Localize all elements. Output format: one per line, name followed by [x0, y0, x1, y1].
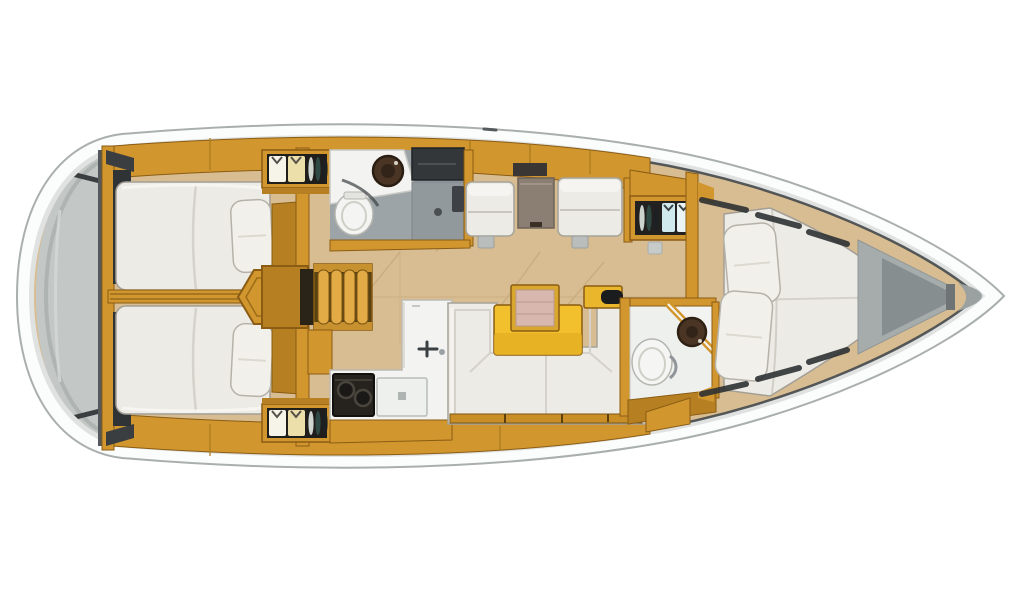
wardrobe-bottom-aft [262, 398, 332, 442]
companionway-base [308, 330, 332, 374]
hanging-garment [269, 156, 286, 182]
toilet [632, 339, 672, 385]
stored-disc [653, 205, 658, 231]
forward-bulkhead [686, 172, 698, 300]
settee-shelf-strip [450, 414, 642, 423]
shower-drain [434, 208, 442, 216]
armchair-foot [478, 236, 494, 248]
hanging-garment [288, 156, 305, 182]
shelf-niche-dark [513, 163, 547, 176]
stored-disc [308, 157, 313, 181]
wardrobe-foot [648, 242, 662, 254]
stored-disc [322, 411, 327, 435]
galley-plinth [330, 420, 452, 443]
stored-disc [315, 157, 320, 181]
wardrobe-top-aft [262, 150, 332, 194]
stored-disc [315, 411, 320, 435]
yacht-floorplan-canvas [0, 0, 1024, 600]
stored-disc [646, 205, 651, 231]
cabinet-with-handle [584, 286, 623, 308]
deck-fitting-dash [484, 129, 496, 130]
companionway-steps [314, 264, 372, 330]
hanging-garment [662, 203, 675, 232]
hanging-garment [288, 410, 305, 436]
stored-disc [639, 205, 644, 231]
burner [338, 382, 354, 398]
head-wall-left [620, 298, 630, 416]
side-table [518, 178, 554, 228]
floorplan-drawing [0, 0, 1024, 600]
table-leaf [516, 290, 554, 326]
dark-fitting [452, 186, 464, 212]
stored-disc [308, 411, 313, 435]
hanging-garment [269, 410, 286, 436]
burner [355, 390, 371, 406]
armchair-foot [572, 236, 588, 248]
stored-disc [322, 157, 327, 181]
